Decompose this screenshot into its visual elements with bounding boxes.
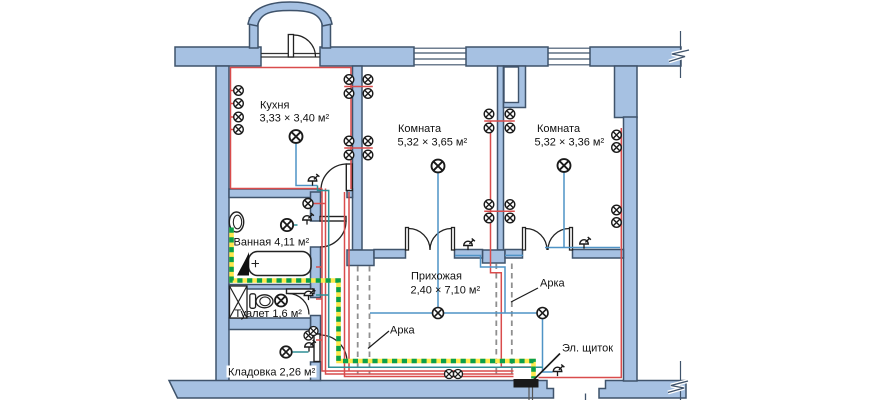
svg-text:Комната: Комната — [537, 123, 581, 135]
svg-text:Прихожая: Прихожая — [411, 271, 462, 283]
svg-text:3,33 × 3,40 м²: 3,33 × 3,40 м² — [260, 113, 330, 125]
svg-text:Кухня: Кухня — [260, 100, 289, 112]
svg-text:Ванная 4,11 м²: Ванная 4,11 м² — [234, 237, 310, 249]
svg-text:5,32 × 3,65 м²: 5,32 × 3,65 м² — [398, 137, 468, 149]
svg-text:5,32 × 3,36 м²: 5,32 × 3,36 м² — [535, 137, 605, 149]
svg-text:Арка: Арка — [390, 325, 416, 337]
svg-text:Кладовка 2,26 м²: Кладовка 2,26 м² — [228, 367, 316, 379]
svg-text:Туалет 1,6 м²: Туалет 1,6 м² — [235, 308, 303, 320]
svg-text:Комната: Комната — [398, 123, 442, 135]
svg-text:Эл. щиток: Эл. щиток — [562, 343, 613, 355]
svg-text:Арка: Арка — [540, 278, 566, 290]
svg-text:2,40 × 7,10 м²: 2,40 × 7,10 м² — [411, 285, 481, 297]
